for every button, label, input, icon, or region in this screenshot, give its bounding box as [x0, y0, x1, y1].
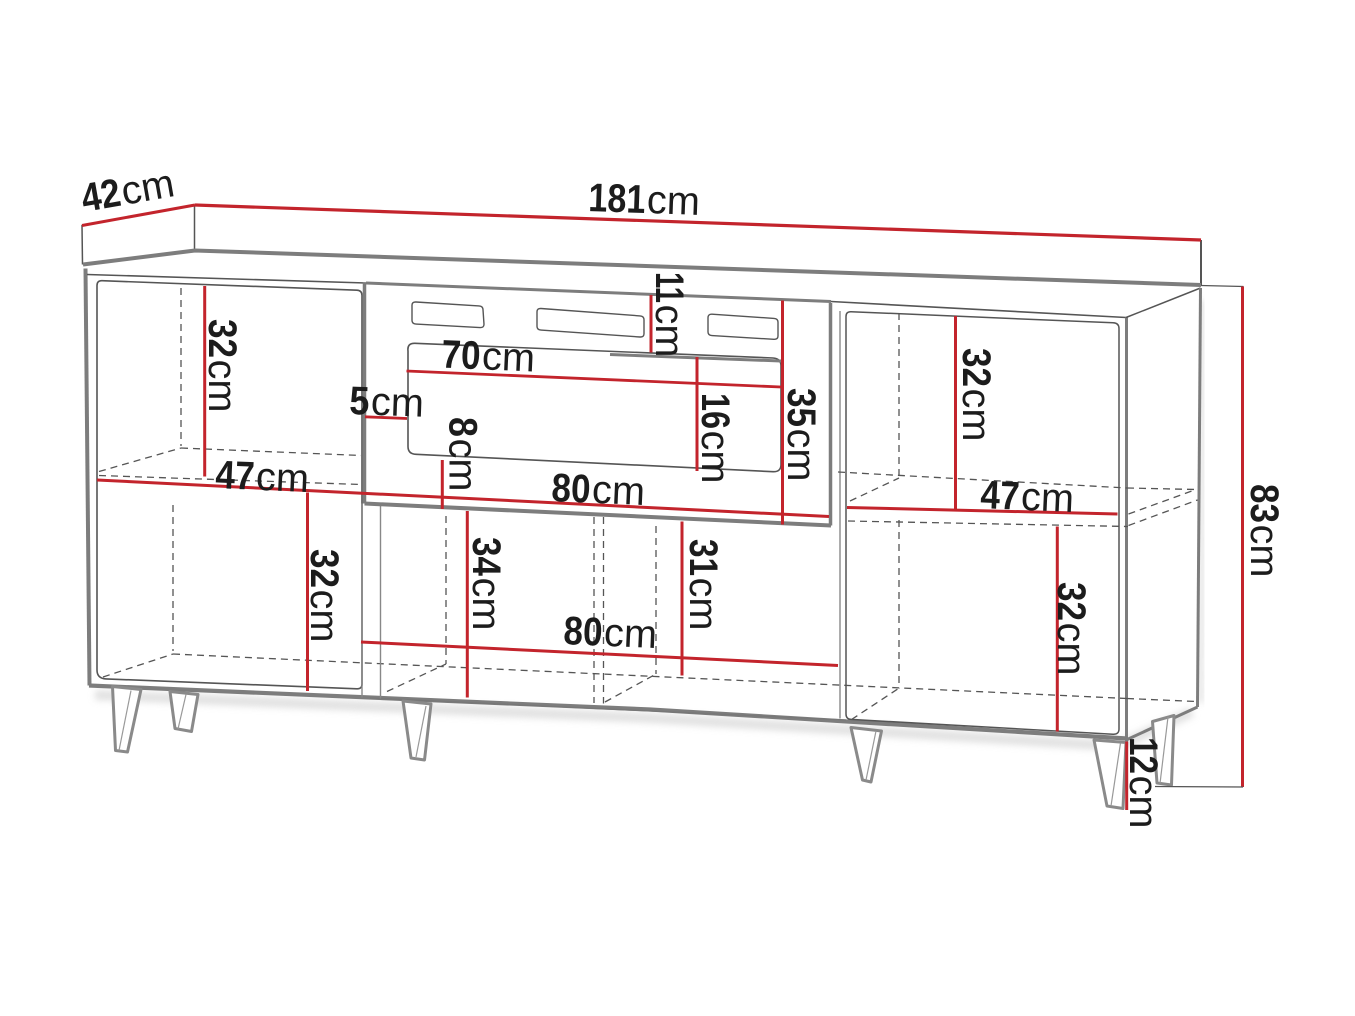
svg-text:83: 83	[1242, 484, 1286, 523]
svg-text:cm: cm	[591, 468, 646, 514]
svg-text:cm: cm	[464, 578, 508, 631]
svg-text:80: 80	[551, 466, 592, 512]
svg-text:31: 31	[681, 539, 725, 576]
svg-text:32: 32	[302, 549, 346, 588]
svg-text:cm: cm	[603, 611, 658, 657]
svg-text:cm: cm	[779, 429, 823, 482]
svg-text:47: 47	[215, 453, 256, 499]
svg-text:cm: cm	[370, 380, 425, 426]
svg-text:11: 11	[647, 272, 691, 303]
svg-text:cm: cm	[441, 439, 485, 492]
svg-text:47: 47	[980, 473, 1021, 519]
svg-text:8: 8	[441, 417, 485, 437]
svg-text:cm: cm	[255, 455, 310, 501]
svg-text:32: 32	[954, 348, 998, 387]
svg-text:cm: cm	[1242, 525, 1286, 578]
svg-text:cm: cm	[481, 334, 536, 380]
svg-text:cm: cm	[302, 590, 346, 643]
svg-text:34: 34	[464, 537, 508, 577]
svg-text:70: 70	[441, 333, 482, 379]
svg-text:35: 35	[779, 388, 823, 427]
svg-text:42: 42	[78, 171, 124, 221]
svg-text:cm: cm	[200, 360, 244, 413]
svg-text:32: 32	[1049, 582, 1093, 621]
svg-text:16: 16	[693, 393, 737, 429]
svg-text:32: 32	[200, 319, 244, 358]
svg-text:12: 12	[1121, 737, 1165, 774]
svg-text:cm: cm	[647, 305, 691, 358]
svg-text:cm: cm	[693, 431, 737, 484]
svg-text:80: 80	[563, 609, 604, 655]
svg-text:cm: cm	[681, 578, 725, 631]
svg-text:cm: cm	[118, 161, 178, 214]
svg-text:cm: cm	[1049, 623, 1093, 676]
svg-text:cm: cm	[1121, 776, 1165, 829]
svg-text:181: 181	[588, 176, 647, 222]
svg-text:5: 5	[349, 379, 371, 424]
svg-text:cm: cm	[954, 389, 998, 442]
svg-text:cm: cm	[646, 178, 701, 224]
svg-text:cm: cm	[1020, 475, 1075, 521]
